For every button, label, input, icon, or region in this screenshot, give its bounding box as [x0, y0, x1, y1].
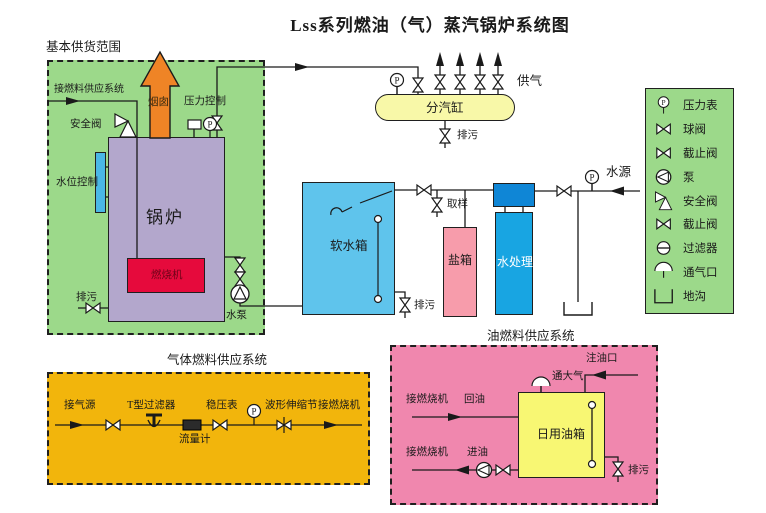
feed-pump-label: 水泵 [226, 310, 247, 322]
salt-tank-label: 盐箱 [448, 254, 472, 268]
stop-valve-icon [652, 142, 679, 164]
source-valve-icon [557, 186, 571, 196]
legend-label: 泵 [683, 169, 695, 185]
gas-fuel-system-box [47, 372, 370, 485]
oil-system-title: 油燃料供应系统 [487, 329, 575, 343]
safety-valve-label: 安全阀 [70, 119, 102, 131]
legend-label: 过滤器 [683, 240, 718, 256]
treatment-label: 水处理 [497, 256, 533, 270]
pressure-gauge-icon [652, 94, 679, 116]
diagram-title: Lss系列燃油（气）蒸汽锅炉系统图 [95, 11, 765, 36]
trench-icon [652, 285, 679, 307]
filter-icon [652, 237, 679, 259]
t-filter-label: T型过滤器 [127, 400, 175, 412]
steam-supply-arrow [456, 52, 464, 66]
legend-row: 泵 [652, 166, 729, 188]
legend-label: 球阀 [683, 121, 706, 137]
boiler-blowdown-label: 排污 [76, 292, 97, 304]
legend-row: 截止阀 [652, 213, 729, 235]
header-gauge-icon [391, 74, 404, 95]
sampling-valve-icon [432, 198, 442, 212]
legend-label: 安全阀 [683, 193, 718, 209]
legend-label: 地沟 [683, 288, 706, 304]
legend-label: 通气口 [683, 264, 718, 280]
legend-row: 球阀 [652, 118, 729, 140]
safety-valve-icon [652, 190, 679, 212]
steam-flow-arrow [295, 63, 309, 71]
source-gauge-icon [586, 171, 599, 192]
water-treatment-head [493, 183, 535, 207]
ball-valve-icon [652, 118, 679, 140]
gas-system-title: 气体燃料供应系统 [167, 353, 267, 367]
water-level-label: 水位控制 [56, 177, 98, 189]
boiler-body [108, 137, 225, 322]
boiler-label: 锅炉 [146, 208, 184, 228]
water-source-label: 水源 [606, 165, 631, 179]
steam-header-label: 分汽缸 [426, 101, 464, 115]
header-inlet-valve-icon [413, 78, 423, 92]
steam-supply-arrow [494, 52, 502, 66]
gas-source-label: 接气源 [64, 400, 96, 412]
salt-tank [443, 227, 477, 317]
expansion-joint-label: 波形伸缩节 [265, 400, 318, 412]
fuel-inlet-label: 接燃料供应系统 [54, 84, 124, 96]
gas-to-burner-label: 接燃烧机 [318, 400, 360, 412]
legend-row: 截止阀 [652, 142, 729, 164]
supply-valve-icon [493, 75, 503, 89]
header-blowdown-label: 排污 [457, 130, 478, 142]
legend-label: 压力表 [683, 97, 718, 113]
water-source-arrow [610, 187, 624, 196]
boiler-system-diagram: P [0, 0, 766, 513]
oil-blowdown-label: 排污 [628, 465, 649, 477]
legend-row: 安全阀 [652, 190, 729, 212]
header-blowdown-valve-icon [440, 129, 450, 143]
oil-to-burner-return-label: 接燃烧机 [406, 394, 448, 406]
supply-valve-icon [455, 75, 465, 89]
pump-icon [652, 166, 679, 188]
legend-row: 通气口 [652, 261, 729, 283]
legend-row: 地沟 [652, 285, 729, 307]
steam-supply-label: 供气 [517, 74, 542, 88]
chimney-label: 烟囱 [148, 97, 169, 109]
tank-blowdown-valve-icon [400, 298, 410, 312]
ball-valve-icon [417, 185, 431, 195]
burner-label: 燃烧机 [151, 270, 183, 282]
scope-label: 基本供货范围 [46, 40, 121, 54]
sampling-label: 取样 [447, 199, 468, 211]
vent-icon [652, 261, 679, 283]
inlet-oil-label: 进油 [467, 447, 488, 459]
legend-row: 压力表 [652, 94, 729, 116]
legend-panel: 压力表 球阀 截止阀 泵 安全阀 截止阀 过滤器 通气口 [645, 88, 734, 314]
supply-valve-icon [475, 75, 485, 89]
day-tank-label: 日用油箱 [537, 428, 585, 442]
legend-label: 截止阀 [683, 145, 718, 161]
soft-tank-blowdown-label: 排污 [414, 300, 435, 312]
supply-valve-icon [435, 75, 445, 89]
steam-supply-arrow [436, 52, 444, 66]
stop-valve-icon [652, 213, 679, 235]
soft-tank-label: 软水箱 [330, 239, 368, 253]
fill-port-label: 注油口 [586, 353, 618, 365]
return-oil-label: 回油 [464, 394, 485, 406]
pressure-control-label: 压力控制 [184, 96, 226, 108]
vent-label: 通大气 [552, 371, 584, 383]
floor-trench [564, 302, 592, 315]
regulator-gauge-label: 稳压表 [206, 400, 238, 412]
oil-to-burner-inlet-label: 接燃烧机 [406, 447, 448, 459]
steam-supply-arrow [476, 52, 484, 66]
legend-label: 截止阀 [683, 216, 718, 232]
flow-meter-label: 流量计 [179, 434, 211, 446]
legend-row: 过滤器 [652, 237, 729, 259]
